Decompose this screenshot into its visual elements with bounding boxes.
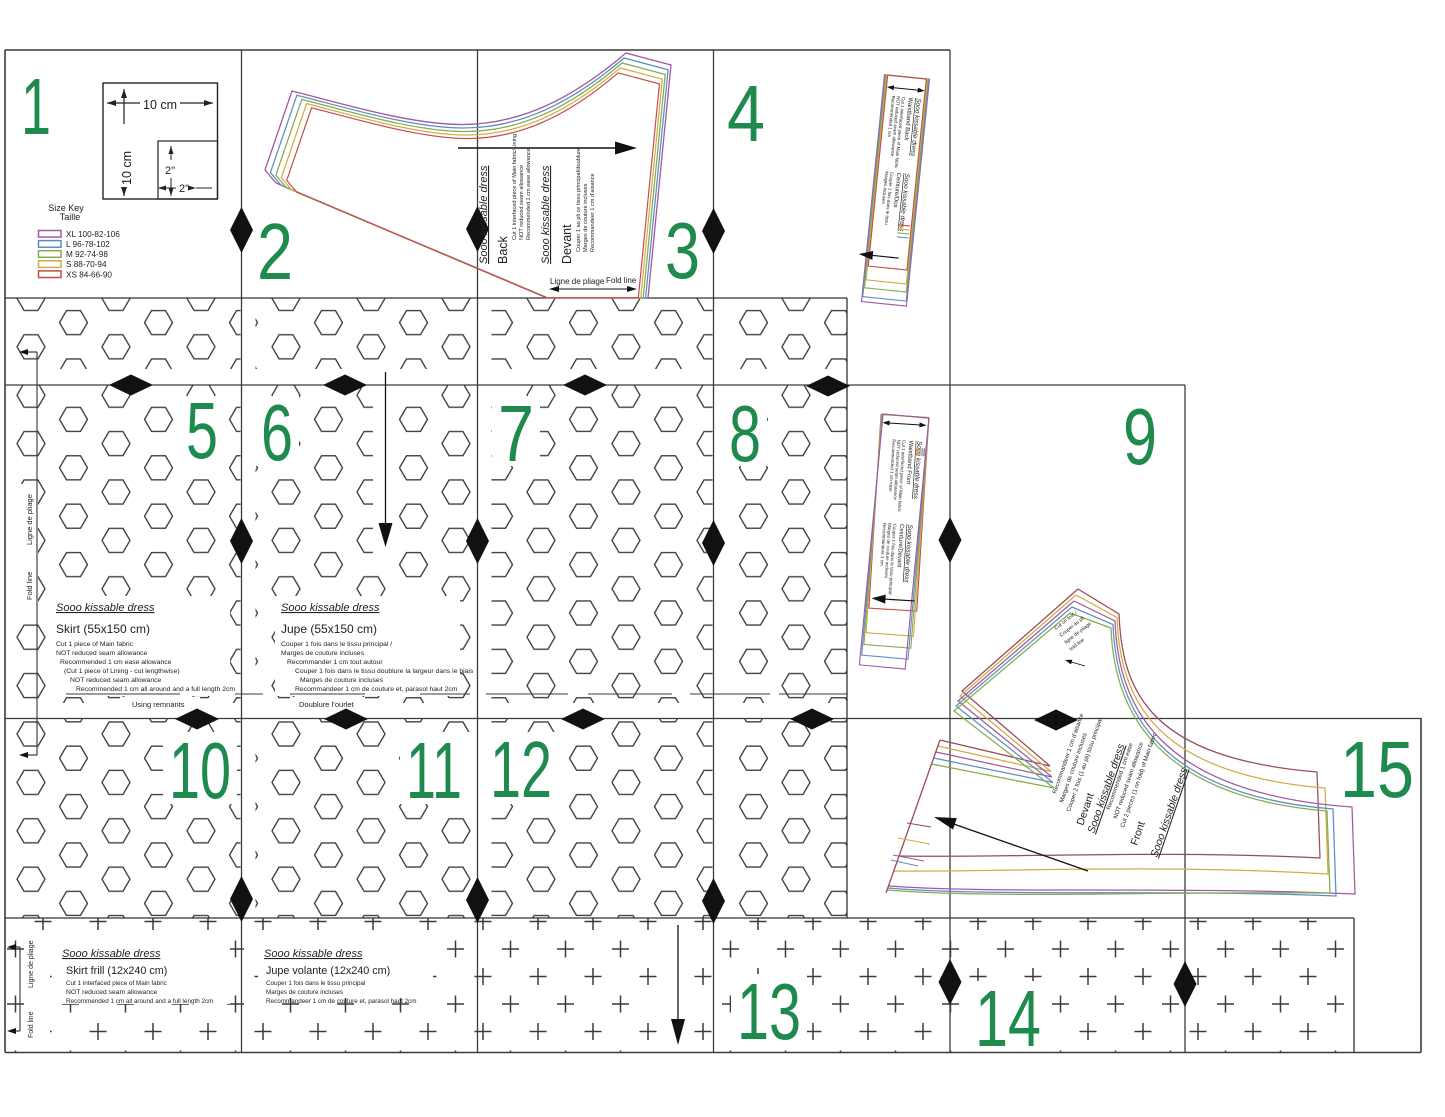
svg-text:10: 10	[169, 726, 231, 815]
svg-text:14: 14	[975, 974, 1041, 1063]
svg-text:Sooo kissable dress: Sooo kissable dress	[478, 165, 490, 264]
svg-text:Marges de couture incluses: Marges de couture incluses	[300, 677, 384, 684]
svg-text:M 92-74-98: M 92-74-98	[66, 250, 108, 259]
svg-text:2: 2	[257, 207, 293, 296]
svg-text:Recommended 1 cm ease allowanc: Recommended 1 cm ease allowance	[60, 659, 172, 666]
svg-text:L 96-78-102: L 96-78-102	[66, 240, 110, 249]
svg-text:Recommended 1 cm all around an: Recommended 1 cm all around and a full l…	[76, 686, 235, 693]
svg-text:13: 13	[737, 967, 801, 1056]
svg-text:Taille: Taille	[60, 212, 81, 222]
svg-text:Fold line: Fold line	[25, 572, 34, 600]
svg-text:6: 6	[261, 388, 293, 477]
svg-text:Couper 1 fois dans le tissu pr: Couper 1 fois dans le tissu principal /	[281, 641, 392, 648]
svg-text:12: 12	[490, 725, 552, 814]
svg-text:1: 1	[21, 62, 51, 151]
svg-text:Sooo kissable dress: Sooo kissable dress	[281, 602, 380, 614]
svg-text:Couper 1 fois dans le tissu pr: Couper 1 fois dans le tissu principal	[266, 980, 365, 987]
svg-text:10 cm: 10 cm	[120, 151, 134, 185]
svg-text:Fold line: Fold line	[28, 1011, 35, 1038]
svg-text:3: 3	[665, 206, 700, 295]
svg-text:Cut 1 piece of Main fabric: Cut 1 piece of Main fabric	[56, 641, 134, 648]
svg-text:Back: Back	[496, 235, 510, 264]
svg-text:Ligne de pliage: Ligne de pliage	[28, 940, 35, 988]
svg-text:Ligne de pliage: Ligne de pliage	[550, 277, 605, 286]
svg-text:Recommended 1 cm all around an: Recommended 1 cm all around and a full l…	[66, 998, 213, 1005]
svg-text:Jupe (55x150 cm): Jupe (55x150 cm)	[281, 622, 377, 636]
svg-text:2": 2"	[165, 165, 175, 177]
svg-text:Cut 1 interfaced piece of Main: Cut 1 interfaced piece of Main fabric	[66, 980, 167, 987]
svg-text:Cut 1 interfaced piece of Main: Cut 1 interfaced piece of Main fabric/Li…	[512, 134, 518, 240]
svg-text:Marges de couture incluses: Marges de couture incluses	[583, 183, 589, 252]
svg-text:(Cut 1 piece of Lining - cut l: (Cut 1 piece of Lining - cut lengthwise)	[64, 668, 180, 675]
svg-text:Recommended 1 cm ease allowanc: Recommended 1 cm ease allowance	[526, 148, 532, 240]
svg-text:Marges de couture incluses: Marges de couture incluses	[281, 650, 365, 657]
svg-text:Marges de couture incluses: Marges de couture incluses	[266, 989, 343, 996]
svg-text:Sooo kissable dress: Sooo kissable dress	[540, 165, 552, 264]
svg-text:9: 9	[1123, 392, 1157, 481]
svg-text:Jupe volante (12x240 cm): Jupe volante (12x240 cm)	[266, 965, 390, 977]
svg-text:Fold line: Fold line	[606, 276, 637, 285]
svg-text:Couper 1 au pli ce tissu princ: Couper 1 au pli ce tissu principal/doubl…	[576, 148, 582, 252]
svg-text:Using remnants: Using remnants	[132, 700, 185, 709]
svg-text:Skirt frill (12x240 cm): Skirt frill (12x240 cm)	[66, 965, 167, 977]
svg-text:Recommandeer 1 cm de couture e: Recommandeer 1 cm de couture et, parasol…	[295, 686, 458, 693]
svg-text:Recommandeer 1 cm d’aisance: Recommandeer 1 cm d’aisance	[590, 173, 596, 252]
svg-text:XL 100-82-106: XL 100-82-106	[66, 230, 120, 239]
svg-text:Doublure l’ourlet: Doublure l’ourlet	[299, 700, 355, 709]
svg-text:11: 11	[406, 726, 462, 815]
svg-text:S 88-70-94: S 88-70-94	[66, 260, 107, 269]
svg-text:NOT reduced seam allowance: NOT reduced seam allowance	[70, 677, 162, 684]
svg-text:8: 8	[729, 389, 761, 478]
svg-text:4: 4	[727, 69, 765, 158]
svg-text:7: 7	[498, 389, 534, 478]
svg-text:5: 5	[186, 386, 218, 475]
svg-text:Skirt (55x150 cm): Skirt (55x150 cm)	[56, 622, 150, 636]
svg-text:Sooo kissable dress: Sooo kissable dress	[62, 948, 161, 960]
svg-text:Ligne de pliage: Ligne de pliage	[25, 494, 34, 545]
svg-text:NOT reduced seam allowance: NOT reduced seam allowance	[66, 989, 158, 996]
svg-text:2": 2"	[179, 183, 189, 195]
svg-text:Recommandeer 1 cm de couture e: Recommandeer 1 cm de couture et, parasol…	[266, 998, 417, 1005]
svg-text:Couper 1 fois dans le tissu do: Couper 1 fois dans le tissu doublure la …	[295, 668, 474, 675]
svg-text:XS 84-66-90: XS 84-66-90	[66, 270, 112, 279]
svg-text:Sooo kissable dress: Sooo kissable dress	[56, 602, 155, 614]
svg-text:NOT reduced seam allowance: NOT reduced seam allowance	[519, 165, 525, 240]
svg-text:NOT reduced seam allowance: NOT reduced seam allowance	[56, 650, 148, 657]
svg-text:Recommander 1 cm tout autour: Recommander 1 cm tout autour	[287, 659, 383, 666]
svg-text:Devant: Devant	[560, 224, 574, 264]
svg-text:15: 15	[1340, 725, 1414, 814]
svg-text:10 cm: 10 cm	[143, 98, 177, 112]
svg-text:Sooo kissable dress: Sooo kissable dress	[264, 948, 363, 960]
